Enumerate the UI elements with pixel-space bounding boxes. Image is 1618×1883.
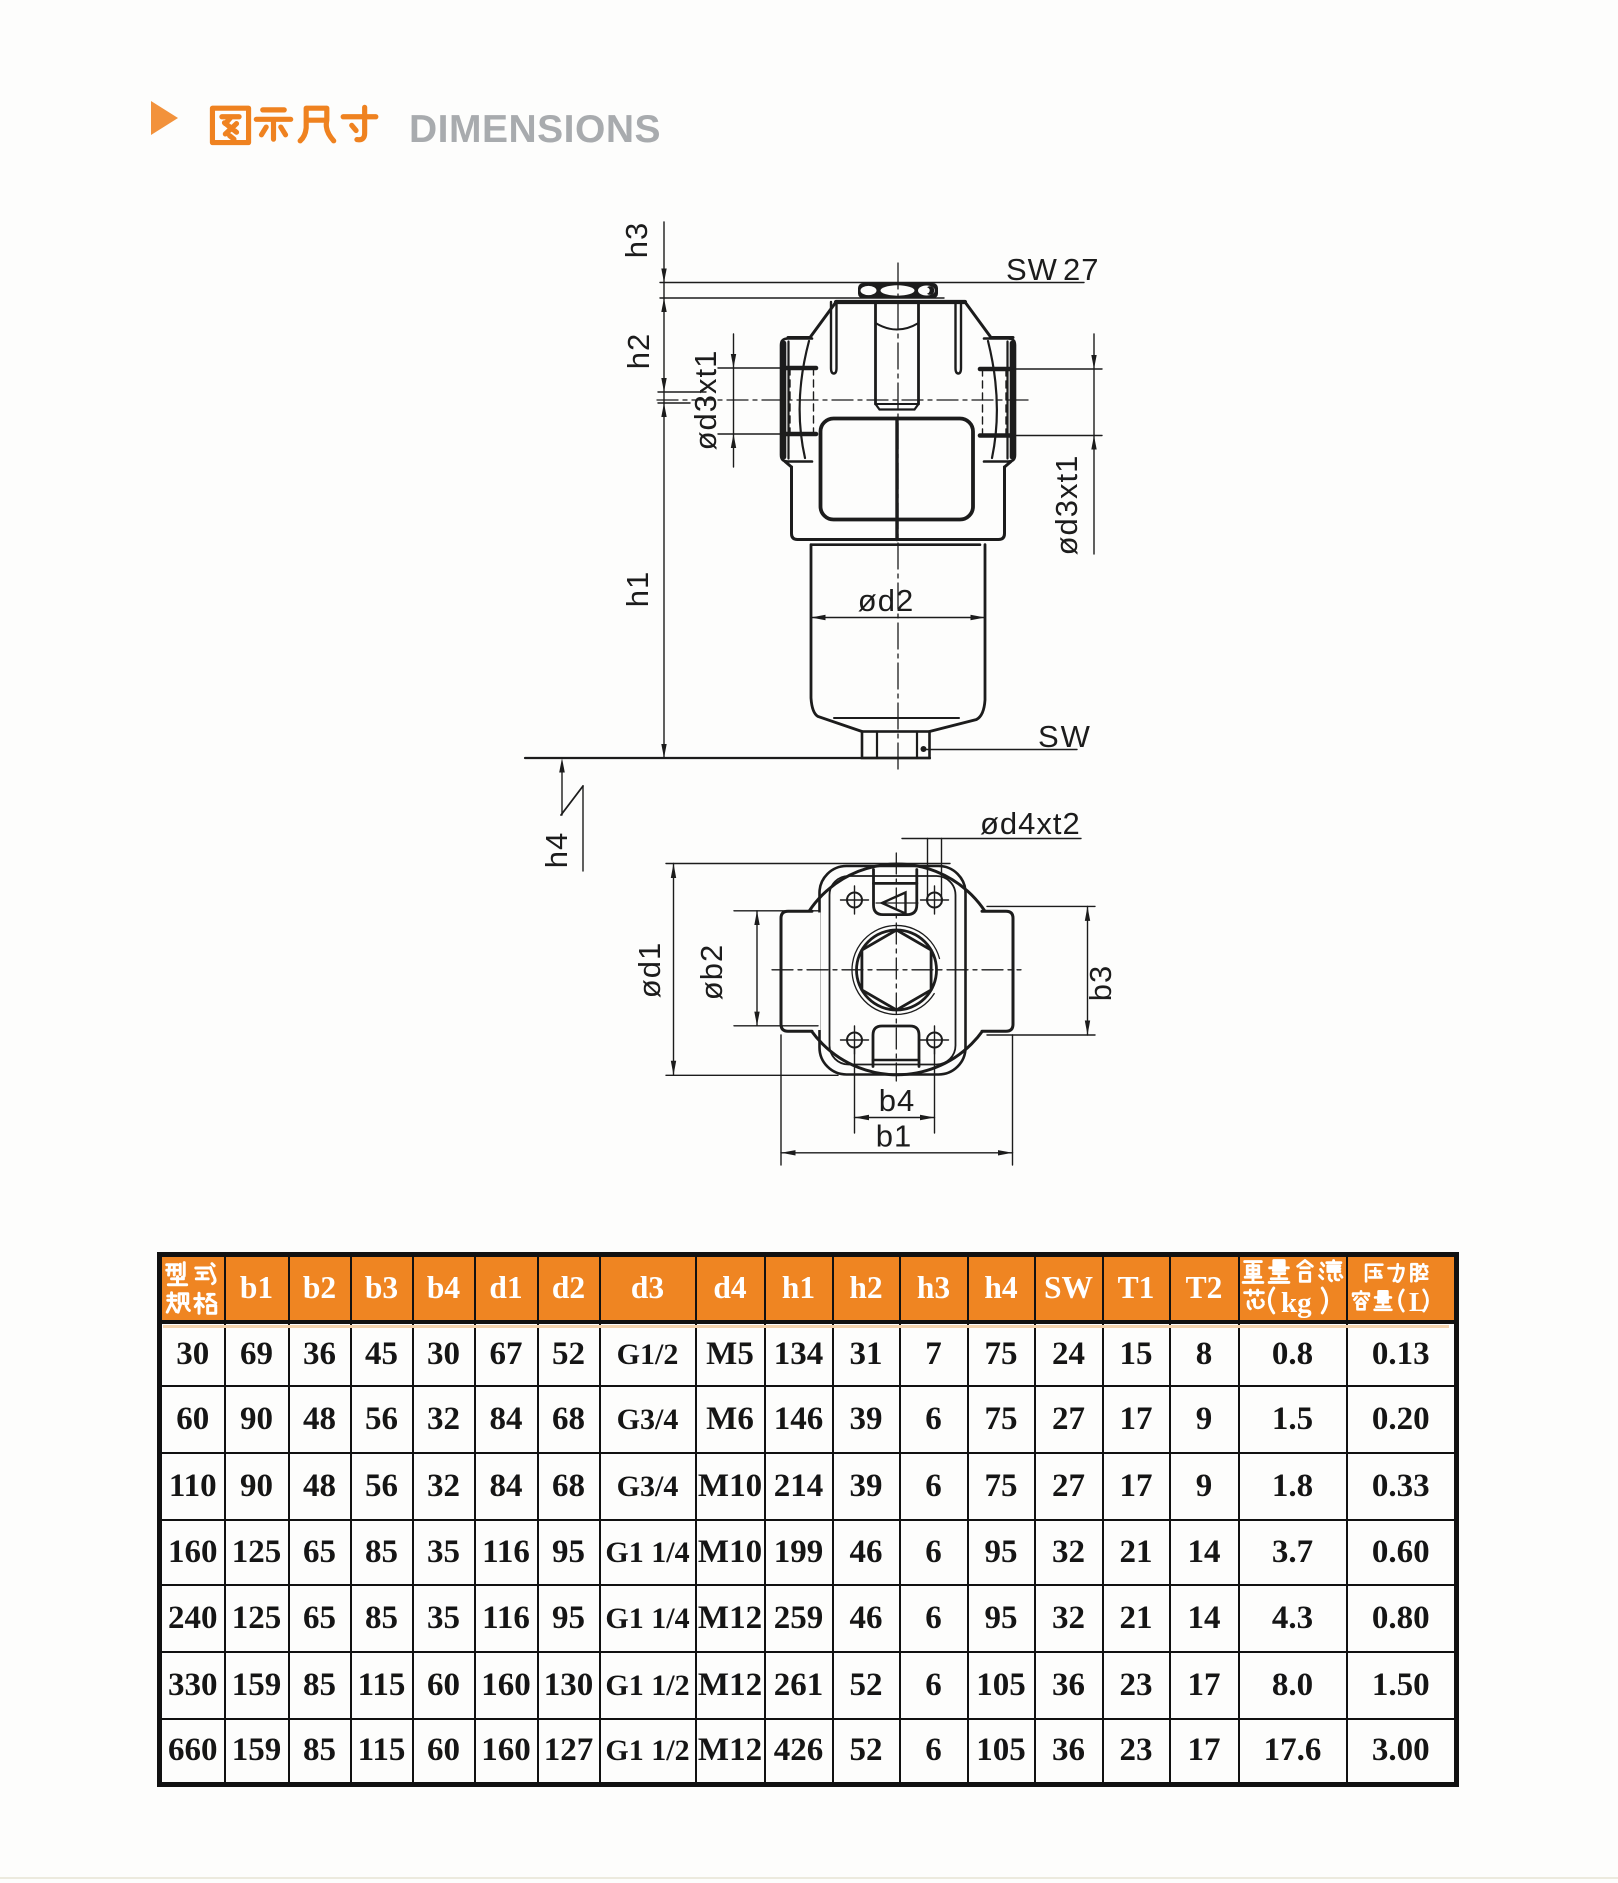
- svg-text:kg: kg: [1281, 1287, 1312, 1319]
